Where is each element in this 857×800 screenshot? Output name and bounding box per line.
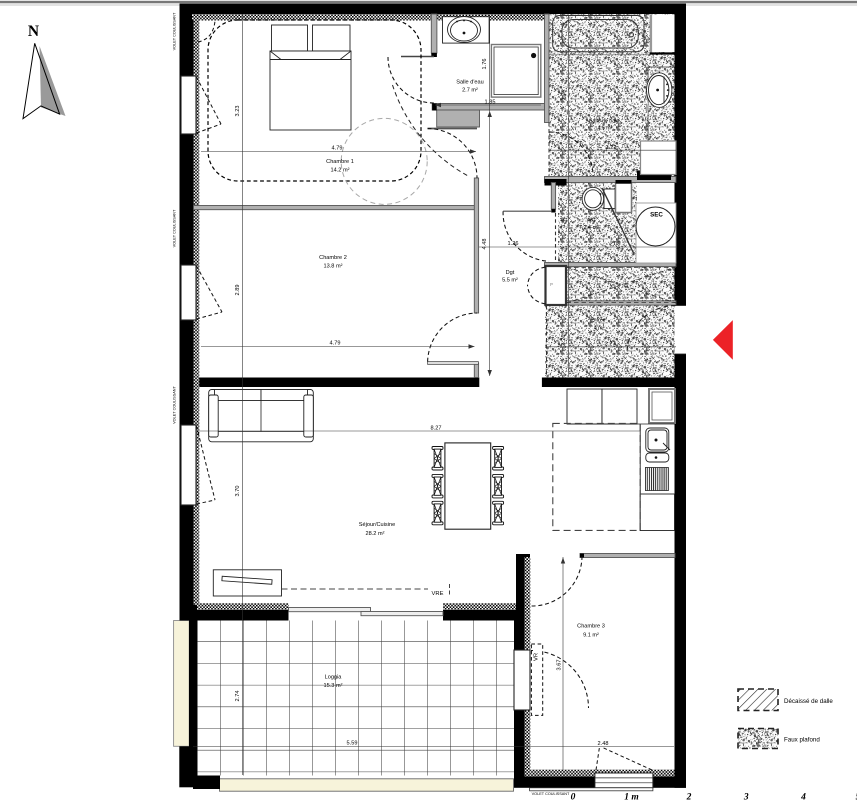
svg-text:8.27: 8.27 — [431, 426, 442, 432]
svg-text:Chambre 1: Chambre 1 — [326, 159, 354, 165]
svg-text:4 m²: 4 m² — [594, 326, 605, 332]
svg-text:2.4 m²: 2.4 m² — [583, 225, 599, 231]
svg-text:2.48: 2.48 — [598, 741, 609, 747]
svg-text:2.74: 2.74 — [235, 691, 241, 702]
svg-text:3.70: 3.70 — [235, 486, 241, 497]
svg-text:Faux plafond: Faux plafond — [784, 737, 820, 744]
svg-text:4.5 m²: 4.5 m² — [598, 126, 613, 132]
svg-text:Dgt: Dgt — [506, 270, 515, 276]
svg-text:Loggia: Loggia — [325, 675, 343, 681]
svg-text:28.2 m²: 28.2 m² — [366, 531, 385, 537]
svg-text:3.23: 3.23 — [235, 106, 241, 117]
svg-text:Séjour/Cuisine: Séjour/Cuisine — [359, 522, 395, 528]
svg-text:15.3 m²: 15.3 m² — [324, 683, 343, 689]
svg-text:SEC: SEC — [650, 212, 663, 219]
svg-text:14.2 m²: 14.2 m² — [331, 168, 350, 174]
svg-text:Entrée: Entrée — [590, 318, 605, 324]
svg-text:Chambre 2: Chambre 2 — [319, 255, 347, 261]
svg-text:1.41: 1.41 — [561, 217, 567, 228]
svg-text:1.85: 1.85 — [485, 99, 496, 105]
svg-text:3.67: 3.67 — [557, 660, 563, 671]
svg-text:VOLET COULISSANT: VOLET COULISSANT — [532, 792, 570, 796]
svg-text:Salle d'eau: Salle d'eau — [456, 80, 484, 86]
svg-text:3: 3 — [743, 793, 749, 800]
svg-text:5.5 m²: 5.5 m² — [502, 278, 518, 284]
svg-text:VOLET COULISSANT: VOLET COULISSANT — [173, 12, 177, 50]
svg-text:13.8 m²: 13.8 m² — [324, 264, 343, 270]
svg-text:2.27: 2.27 — [605, 341, 616, 347]
svg-text:0: 0 — [571, 793, 576, 800]
svg-text:2.78: 2.78 — [562, 90, 568, 101]
svg-text:4.79: 4.79 — [330, 341, 341, 347]
svg-text:1.26: 1.26 — [561, 335, 567, 346]
svg-text:9.1 m²: 9.1 m² — [583, 633, 599, 639]
svg-text:2: 2 — [686, 793, 692, 800]
svg-text:1.26: 1.26 — [508, 241, 519, 247]
svg-text:1.76: 1.76 — [482, 59, 488, 70]
svg-text:VRE: VRE — [432, 591, 444, 597]
svg-text:Chambre 3: Chambre 3 — [577, 624, 605, 630]
svg-text:5.59: 5.59 — [347, 741, 358, 747]
svg-text:N: N — [28, 23, 39, 40]
svg-text:4: 4 — [800, 793, 806, 800]
svg-text:Décaissé de dalle: Décaissé de dalle — [784, 698, 833, 705]
svg-text:1 m: 1 m — [624, 793, 639, 800]
svg-text:2.22: 2.22 — [606, 145, 617, 151]
svg-text:4.79: 4.79 — [332, 146, 343, 152]
svg-text:4.48: 4.48 — [482, 239, 488, 250]
svg-text:VOLET COULISSANT: VOLET COULISSANT — [173, 385, 177, 423]
svg-text:P: P — [550, 282, 553, 287]
svg-text:WC: WC — [586, 218, 595, 224]
svg-text:VOLET COULISSANT: VOLET COULISSANT — [173, 209, 177, 247]
svg-text:2.89: 2.89 — [235, 285, 241, 296]
svg-text:2.7 m²: 2.7 m² — [462, 88, 478, 94]
svg-text:Salle de bain: Salle de bain — [589, 119, 619, 125]
svg-text:2.09: 2.09 — [610, 241, 621, 247]
svg-text:VR: VR — [534, 653, 540, 661]
